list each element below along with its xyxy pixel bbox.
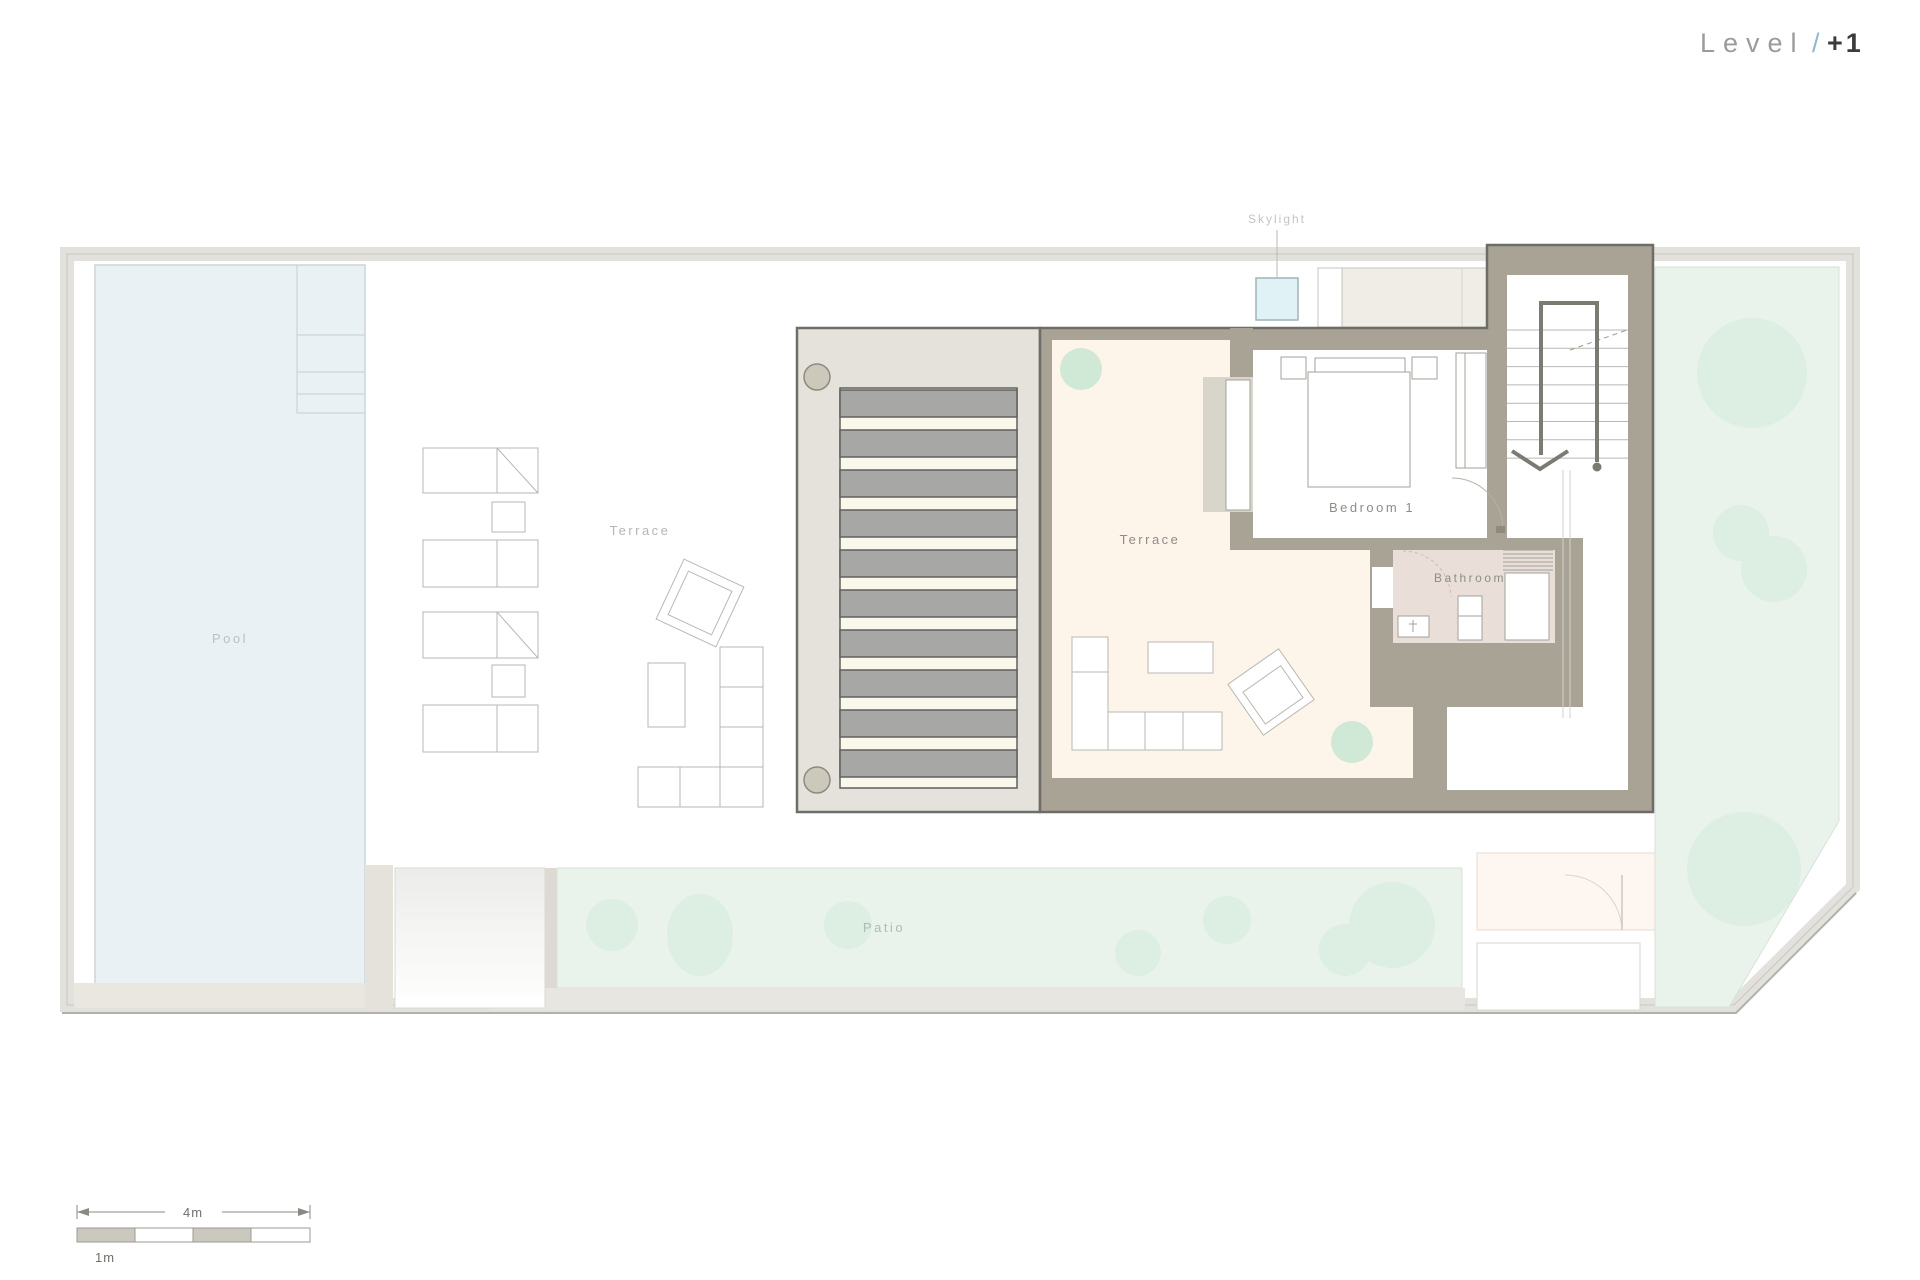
bed bbox=[1308, 372, 1410, 487]
floor-plan-page: Pool Terrace Terrace Bedroom 1 Bathroom … bbox=[0, 0, 1920, 1280]
roof-slot bbox=[1318, 268, 1342, 327]
tree bbox=[1115, 930, 1161, 976]
terrace-main-label: Terrace bbox=[1120, 532, 1181, 547]
patio bbox=[490, 868, 1465, 1010]
bathroom-label: Bathroom bbox=[1434, 571, 1506, 585]
nightstand bbox=[1281, 357, 1306, 379]
coffee-table bbox=[1148, 642, 1213, 673]
pool-label: Pool bbox=[212, 631, 248, 646]
bedroom-window bbox=[1226, 380, 1250, 510]
ramp bbox=[395, 868, 545, 1008]
tree bbox=[667, 894, 733, 976]
pergola-slat bbox=[840, 510, 1017, 537]
pergola-slat bbox=[840, 430, 1017, 457]
title-level-number: +1 bbox=[1827, 28, 1864, 58]
side-table bbox=[492, 502, 525, 532]
annex-room bbox=[1477, 853, 1655, 930]
tree bbox=[586, 899, 638, 951]
roof-strip bbox=[1256, 230, 1487, 327]
plant bbox=[1331, 721, 1373, 763]
title-level-text: Level bbox=[1700, 28, 1805, 58]
scale-segment bbox=[77, 1228, 135, 1242]
tree bbox=[1687, 812, 1801, 926]
title-block: Level / +1 bbox=[1700, 28, 1864, 58]
toilet bbox=[1458, 596, 1482, 640]
terrace-left-label: Terrace bbox=[610, 523, 671, 538]
scale-bar: 4m 1m bbox=[77, 1205, 310, 1265]
skylight bbox=[1256, 278, 1298, 320]
pergola-slat bbox=[840, 630, 1017, 657]
scale-unit-label: 1m bbox=[95, 1250, 115, 1265]
railing-post bbox=[1593, 463, 1602, 472]
patio-left-wall bbox=[545, 868, 557, 990]
pergola-column bbox=[804, 364, 830, 390]
scale-arrow-left bbox=[77, 1208, 89, 1216]
pergola-slat bbox=[840, 750, 1017, 777]
shower-tray bbox=[1505, 573, 1549, 640]
bedroom-door-leaf bbox=[1496, 526, 1505, 533]
patio-band bbox=[490, 988, 1465, 1010]
pool-deck-band bbox=[74, 983, 392, 1008]
plant bbox=[1060, 348, 1102, 390]
wardrobe bbox=[1456, 353, 1486, 468]
bathroom-door-opening bbox=[1372, 567, 1393, 608]
outdoor-table bbox=[648, 663, 685, 727]
roof-room bbox=[1342, 268, 1487, 327]
annex-court bbox=[1477, 943, 1640, 1010]
tree bbox=[1741, 536, 1807, 602]
side-table bbox=[492, 665, 525, 697]
pergola-column bbox=[804, 767, 830, 793]
pergola-slat bbox=[840, 710, 1017, 737]
title-slash: / bbox=[1812, 28, 1820, 58]
patio-label: Patio bbox=[863, 920, 905, 935]
garden-wall-segment bbox=[365, 865, 393, 1010]
pergola-slat bbox=[840, 470, 1017, 497]
scale-arrow-right bbox=[298, 1208, 310, 1216]
tree bbox=[1203, 896, 1251, 944]
pergola bbox=[797, 328, 1040, 812]
pergola-slat bbox=[840, 390, 1017, 417]
pergola-slat bbox=[840, 550, 1017, 577]
nightstand bbox=[1412, 357, 1437, 379]
scale-segment bbox=[193, 1228, 251, 1242]
pergola-slat bbox=[840, 590, 1017, 617]
tree bbox=[1319, 924, 1371, 976]
floor-plan-drawing: Pool Terrace Terrace Bedroom 1 Bathroom … bbox=[0, 0, 1920, 1280]
tree bbox=[1697, 318, 1807, 428]
house bbox=[1040, 245, 1653, 812]
bedroom-label: Bedroom 1 bbox=[1329, 500, 1415, 515]
pergola-slat bbox=[840, 670, 1017, 697]
bed-headboard bbox=[1315, 358, 1405, 372]
scale-total-label: 4m bbox=[183, 1205, 203, 1220]
skylight-label: Skylight bbox=[1248, 212, 1306, 226]
